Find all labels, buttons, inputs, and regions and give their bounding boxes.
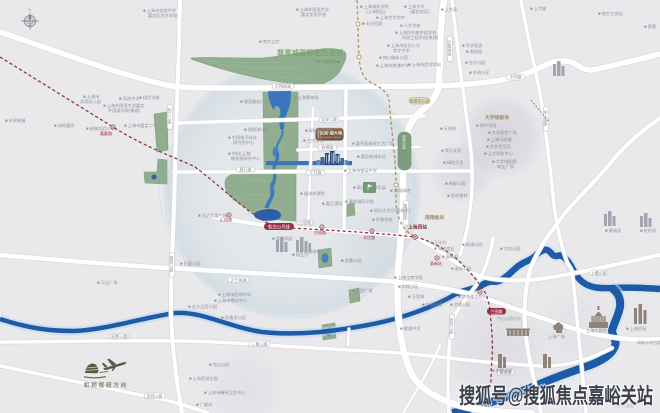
svg-text:■ 上海市西郊学校: ■ 上海市西郊学校 <box>408 61 442 68</box>
svg-text:上海大剧院: 上海大剧院 <box>586 327 608 334</box>
svg-text:■ 丰翔小区: ■ 丰翔小区 <box>398 283 418 290</box>
svg-text:微系统研究中心: 微系统研究中心 <box>231 155 261 162</box>
svg-text:■ 安亭新镇: ■ 安亭新镇 <box>5 117 25 124</box>
svg-text:沪宁高速: 沪宁高速 <box>231 276 247 282</box>
svg-text:真新站: 真新站 <box>430 260 442 266</box>
svg-text:■ 桃浦中学: ■ 桃浦中学 <box>400 325 420 332</box>
svg-text:(嘉定校区): (嘉定校区) <box>410 8 430 15</box>
svg-text:■ 金地格林: ■ 金地格林 <box>447 192 468 199</box>
svg-text:翔江公路: 翔江公路 <box>168 107 173 125</box>
svg-text:■ 高尔夫球俱乐部: ■ 高尔夫球俱乐部 <box>353 184 386 191</box>
svg-text:■ 真新公园: ■ 真新公园 <box>451 265 471 272</box>
svg-text:(上海校区): (上海校区) <box>366 8 386 15</box>
svg-text:■ 上大路: ■ 上大路 <box>530 5 547 12</box>
svg-text:沪嘉高速: 沪嘉高速 <box>448 39 453 57</box>
svg-text:■ 大学软件广场: ■ 大学软件广场 <box>488 129 517 136</box>
svg-text:■ 荣乐花苑: ■ 荣乐花苑 <box>441 147 462 154</box>
svg-text:上海广场: 上海广场 <box>548 333 565 340</box>
svg-text:■ 嘉正国际: ■ 嘉正国际 <box>322 200 342 207</box>
svg-text:■ 南大立交: ■ 南大立交 <box>259 38 279 45</box>
svg-text:研究院中心: 研究院中心 <box>233 139 255 146</box>
svg-text:■ 纪翟公园: ■ 纪翟公园 <box>180 260 200 267</box>
svg-text:中环路: 中环路 <box>510 74 522 80</box>
svg-text:贸易中心站: 贸易中心站 <box>410 98 430 104</box>
svg-text:■ 上海市棉纺中心: ■ 上海市棉纺中心 <box>214 297 248 304</box>
svg-text:■ 上大科技中心: ■ 上大科技中心 <box>484 150 514 157</box>
svg-text:搜狐号@搜狐焦点嘉峪关站: 搜狐号@搜狐焦点嘉峪关站 <box>459 384 653 408</box>
svg-text:■ 金沙公园: ■ 金沙公园 <box>465 59 485 66</box>
svg-text:实验幼儿园: 实验幼儿园 <box>80 98 101 105</box>
svg-text:■ 大学宿舍: ■ 大学宿舍 <box>462 42 483 49</box>
svg-text:嘉定区民办学校: 嘉定区民办学校 <box>148 12 178 19</box>
svg-text:白银路: 白银路 <box>314 229 326 235</box>
svg-text:兰田路: 兰田路 <box>491 308 503 314</box>
svg-text:三鲁公路: 三鲁公路 <box>252 340 268 346</box>
svg-text:中山公园方向: 中山公园方向 <box>497 315 521 321</box>
svg-text:宝安公路: 宝安公路 <box>321 116 337 122</box>
svg-text:■ 上海市桃浦中学: ■ 上海市桃浦中学 <box>376 62 409 69</box>
svg-text:修德路: 修德路 <box>322 144 334 150</box>
svg-text:■ 同济大学: ■ 同济大学 <box>119 95 139 102</box>
svg-text:■ 南翔老街: ■ 南翔老街 <box>492 367 512 374</box>
svg-text:■ 翔华学校: ■ 翔华学校 <box>139 94 160 101</box>
svg-text:轨交11号线: 轨交11号线 <box>268 223 290 230</box>
svg-text:■ 三兴学校: ■ 三兴学校 <box>303 137 324 144</box>
svg-text:虹桥枢纽方向: 虹桥枢纽方向 <box>84 381 128 389</box>
svg-text:树人绿香苑 ■: 树人绿香苑 ■ <box>316 58 340 64</box>
svg-text:■ 万达商业: ■ 万达商业 <box>434 245 454 252</box>
svg-text:■ 上海西郊庄园: ■ 上海西郊庄园 <box>189 375 218 382</box>
svg-text:■ 天恩桥: ■ 天恩桥 <box>440 125 457 132</box>
svg-text:■ 银翔湖公园: ■ 银翔湖公园 <box>244 126 269 133</box>
svg-text:■ 广顺村: ■ 广顺村 <box>196 401 213 408</box>
svg-text:■ 湖荡路幼儿园: ■ 湖荡路幼儿园 <box>240 98 269 105</box>
svg-text:■ 丰庄西路: ■ 丰庄西路 <box>362 20 383 27</box>
svg-text:育才中学: 育才中学 <box>393 47 410 54</box>
svg-text:■ 丰明小区: ■ 丰明小区 <box>469 69 489 76</box>
svg-text:沪翔高速: 沪翔高速 <box>275 83 291 89</box>
svg-text:■ 南翔绿地: ■ 南翔绿地 <box>390 187 411 194</box>
svg-text:大学城板块: 大学城板块 <box>485 114 509 121</box>
svg-text:唐行路: 唐行路 <box>240 166 252 172</box>
svg-text:西班公路: 西班公路 <box>450 318 455 335</box>
svg-text:纪鹤公路: 纪鹤公路 <box>112 333 128 339</box>
svg-text:■ 贵和园: ■ 贵和园 <box>466 48 482 55</box>
svg-text:■ 万达广场: ■ 万达广场 <box>97 279 117 286</box>
svg-text:丰庄路: 丰庄路 <box>363 234 375 240</box>
svg-text:汇旺路: 汇旺路 <box>310 169 322 175</box>
svg-text:科技工程学校(筹建): 科技工程学校(筹建) <box>402 34 439 41</box>
svg-text:■ 华东师大附小: ■ 华东师大附小 <box>458 293 488 300</box>
svg-text:■ 绿地天呈: ■ 绿地天呈 <box>443 159 463 166</box>
svg-text:■ 上大苑: ■ 上大苑 <box>441 6 458 13</box>
svg-text:■ 绿地嘉尚: ■ 绿地嘉尚 <box>54 122 74 129</box>
svg-text:■ 上海西苑: ■ 上海西苑 <box>626 325 647 332</box>
svg-text:白银路: 白银路 <box>299 219 311 225</box>
svg-text:■ 万里广场: ■ 万里广场 <box>352 287 372 294</box>
svg-text:■ 新城实验小学: ■ 新城实验小学 <box>86 125 115 132</box>
svg-text:■ 梅川路街公园: ■ 梅川路街公园 <box>379 54 408 61</box>
svg-text:宝钱公路: 宝钱公路 <box>147 392 163 398</box>
svg-text:■ 古浪公园: ■ 古浪公园 <box>500 245 520 252</box>
svg-text:■ 上海市嘉定二中: ■ 上海市嘉定二中 <box>124 122 157 129</box>
svg-text:■ 上海赛车场: ■ 上海赛车场 <box>294 94 319 101</box>
svg-text:■ 明华学院: ■ 明华学院 <box>476 122 497 129</box>
svg-text:■ 嘉定新城东站: ■ 嘉定新城东站 <box>357 153 386 160</box>
svg-text:嘉定实验学校: 嘉定实验学校 <box>301 11 327 18</box>
svg-text:■ 绿地商务中心: ■ 绿地商务中心 <box>305 127 335 134</box>
svg-text:绿城水岸白堤: 绿城水岸白堤 <box>637 339 660 345</box>
svg-text:■ 万达财富广场: ■ 万达财富广场 <box>198 212 227 219</box>
svg-text:外国语学校(筹建): 外国语学校(筹建) <box>108 107 141 114</box>
svg-text:■ 交通公园: ■ 交通公园 <box>450 301 470 308</box>
svg-text:■ 佳山公园: ■ 佳山公园 <box>209 361 229 368</box>
svg-text:上海西站: 上海西站 <box>408 224 427 231</box>
svg-text:■ 嘉亭荟城市生活广场: ■ 嘉亭荟城市生活广场 <box>352 140 393 147</box>
svg-text:■ 上海马戏城: ■ 上海马戏城 <box>487 136 512 143</box>
svg-text:■ 上海市西郊中学: ■ 上海市西郊中学 <box>218 291 251 298</box>
svg-text:■ 曹安国际学校: ■ 曹安国际学校 <box>345 198 375 205</box>
svg-text:■ 上海交大附中: ■ 上海交大附中 <box>376 14 405 21</box>
svg-text:上槽北路: 上槽北路 <box>591 269 607 275</box>
svg-text:商业广场: 商业广场 <box>497 163 514 170</box>
svg-text:■ 金鼎公园: ■ 金鼎公园 <box>341 257 361 264</box>
svg-text:■ 景瑞苑: ■ 景瑞苑 <box>605 227 622 234</box>
svg-text:■ 华漕里公园: ■ 华漕里公园 <box>221 314 246 321</box>
svg-text:■ 上海市留云中学: ■ 上海市留云中学 <box>344 167 377 174</box>
svg-text:■ 中山公寓: ■ 中山公寓 <box>422 301 442 308</box>
svg-text:YUNJIAN LVDADI: YUNJIAN LVDADI <box>321 136 342 140</box>
svg-text:翡翠城国际化生态区: 翡翠城国际化生态区 <box>277 48 344 57</box>
svg-text:■ 大学生活区: ■ 大学生活区 <box>486 143 511 150</box>
svg-text:■ 新郁公园: ■ 新郁公园 <box>445 180 465 187</box>
svg-text:嘉松公路: 嘉松公路 <box>170 255 175 273</box>
svg-text:■ 上海工商学院: ■ 上海工商学院 <box>394 274 424 281</box>
svg-text:■ 同济大学(沪西校区): ■ 同济大学(沪西校区) <box>370 207 411 214</box>
svg-text:■ 桃浦公园: ■ 桃浦公园 <box>462 241 482 248</box>
svg-text:■ 真新村: ■ 真新村 <box>442 253 459 260</box>
svg-text:■ 下年村: ■ 下年村 <box>430 239 447 246</box>
svg-text:■ 上海市精神卫生中心: ■ 上海市精神卫生中心 <box>204 389 246 396</box>
svg-text:绿地公园: 绿地公园 <box>401 134 406 150</box>
svg-text:■ 金沙江西公园: ■ 金沙江西公园 <box>188 303 217 310</box>
svg-text:■ 中澳学校: ■ 中澳学校 <box>372 216 393 223</box>
svg-text:■ 奥莱: ■ 奥莱 <box>644 23 657 30</box>
svg-text:■ 福海护理院: ■ 福海护理院 <box>300 190 325 197</box>
svg-text:■ 翔立方: ■ 翔立方 <box>292 251 308 258</box>
svg-text:■ 万里城: ■ 万里城 <box>408 293 425 300</box>
svg-text:南翔板块: 南翔板块 <box>425 214 444 221</box>
svg-text:■ 南大生态园: ■ 南大生态园 <box>598 10 623 17</box>
svg-text:■ 虹桥苑: ■ 虹桥苑 <box>640 227 657 234</box>
svg-text:■ 人才学校: ■ 人才学校 <box>400 22 421 29</box>
